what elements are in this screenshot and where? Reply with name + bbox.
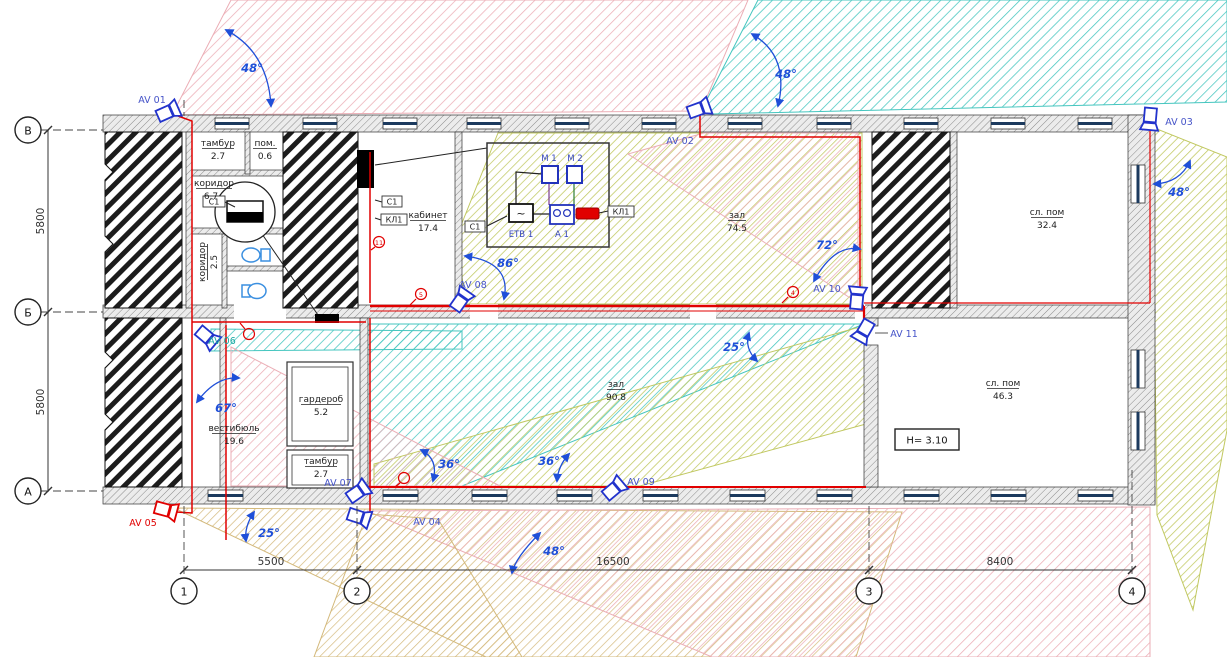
camera-label-av04: AV 04 (413, 517, 441, 528)
cable-marker: 5 (410, 289, 427, 306)
svg-text:74.5: 74.5 (727, 224, 747, 234)
angle-vestibule: 67° (215, 401, 237, 415)
height-note: H= 3.10 (895, 429, 959, 450)
dim-16500: 16500 (596, 556, 629, 568)
wall-device-black (357, 150, 374, 188)
svg-text:сл. пом: сл. пом (986, 379, 1021, 389)
zone-av03 (1152, 127, 1227, 610)
svg-text:0.6: 0.6 (258, 152, 273, 162)
sink-icon (242, 284, 266, 299)
svg-text:сл. пом: сл. пом (1030, 208, 1065, 218)
svg-text:5: 5 (419, 291, 423, 299)
camera-label-av10: AV 10 (813, 284, 841, 295)
svg-text:зал: зал (608, 380, 624, 390)
power-unit-label: ЕТВ 1 (509, 230, 534, 240)
svg-text:тамбур: тамбур (201, 139, 235, 149)
kl1-tag-2: КЛ1 (381, 214, 407, 225)
angle-av05: 25° (258, 526, 280, 540)
floor-plan-canvas: ~ КЛ1 С1 М 1 М 2 ЕТВ 1 А 1 С1 С1 КЛ1 (0, 0, 1227, 657)
kl1-tag: КЛ1 (608, 206, 634, 217)
dim-5800-bottom: 5800 (35, 389, 47, 416)
monitor-1-icon (542, 166, 558, 183)
axis-col-4: 4 (1129, 586, 1136, 599)
angle-av02: 48° (774, 67, 797, 81)
camera-label-av01: AV 01 (138, 95, 166, 106)
angle-av10: 72° (816, 238, 838, 252)
room-cabinet: кабинет17.4 (408, 211, 447, 234)
svg-text:тамбур: тамбур (304, 457, 338, 467)
recorder-label: А 1 (555, 230, 569, 240)
dim-8400: 8400 (987, 556, 1014, 568)
zone-av01 (172, 0, 748, 115)
room-pom: пом.0.6 (253, 139, 277, 162)
dark-block-lower-left (105, 318, 182, 487)
axis-col-2: 2 (354, 586, 361, 599)
coverage-zones (172, 0, 1227, 657)
angle-av01: 48° (240, 61, 263, 75)
axis-row-b: Б (24, 307, 32, 320)
monitor-1-label: М 1 (541, 154, 556, 164)
svg-text:90.8: 90.8 (606, 393, 626, 403)
svg-text:11: 11 (375, 239, 383, 247)
camera-label-av05: AV 05 (129, 518, 157, 529)
dim-5500: 5500 (258, 556, 285, 568)
svg-text:6.7: 6.7 (204, 192, 218, 202)
camera-label-av06: AV 06 (208, 336, 236, 347)
axis-row-v: В (24, 125, 32, 138)
svg-text:коридор: коридор (198, 242, 208, 282)
svg-text:КЛ1: КЛ1 (386, 216, 403, 225)
svg-text:пом.: пом. (254, 139, 275, 149)
c1-tag-label: С1 (470, 223, 481, 232)
angle-av04: 48° (542, 544, 565, 558)
kl1-tag-label: КЛ1 (613, 208, 630, 217)
camera-label-av03: AV 03 (1165, 117, 1193, 128)
cabinet-wall-tags: С1 КЛ1 (375, 196, 407, 225)
camera-label-av09: AV 09 (627, 477, 655, 488)
dark-block-upper-left (105, 132, 182, 308)
cable-marker: 11 (371, 237, 385, 251)
c1-tag-3: С1 (382, 196, 402, 207)
cable-coil-icon (576, 208, 599, 219)
svg-text:2.5: 2.5 (210, 255, 220, 269)
svg-text:зал: зал (729, 211, 745, 221)
svg-text:С1: С1 (387, 198, 398, 207)
svg-text:4: 4 (791, 289, 795, 297)
svg-text:2.7: 2.7 (211, 152, 225, 162)
camera-label-av02: AV 02 (666, 136, 694, 147)
svg-text:46.3: 46.3 (993, 392, 1013, 402)
wc-fixtures (242, 248, 270, 299)
svg-text:19.6: 19.6 (224, 437, 244, 447)
camera-label-av07: AV 07 (324, 478, 352, 489)
recorder-icon (550, 205, 574, 224)
svg-text:~: ~ (516, 207, 525, 220)
monitor-2-icon (567, 166, 582, 183)
dark-block-right (872, 132, 950, 308)
svg-text:коридор: коридор (194, 179, 234, 189)
angle-av08: 86° (497, 256, 519, 270)
room-tambour-1: тамбур2.7 (201, 139, 235, 162)
svg-text:17.4: 17.4 (418, 224, 438, 234)
monitor-2-label: М 2 (567, 154, 582, 164)
angle-av07: 36° (438, 457, 460, 471)
power-unit-icon: ~ (509, 204, 533, 222)
room-sl-pom-1: сл. пом32.4 (1030, 208, 1065, 231)
camera-label-av11: AV 11 (890, 329, 918, 340)
axis-col-3: 3 (866, 586, 873, 599)
height-note-label: H= 3.10 (906, 436, 947, 447)
device-icon (227, 201, 263, 222)
svg-text:5.2: 5.2 (314, 408, 328, 418)
camera-label-av08: AV 08 (459, 280, 487, 291)
toilet-icon (242, 248, 270, 262)
axis-col-1: 1 (181, 586, 188, 599)
angle-av03: 48° (1167, 185, 1190, 199)
svg-text:32.4: 32.4 (1037, 221, 1057, 231)
room-sl-pom-2: сл. пом46.3 (986, 379, 1021, 402)
angle-av09: 36° (538, 454, 560, 468)
svg-text:гардероб: гардероб (299, 395, 344, 405)
dim-5800-top: 5800 (35, 208, 47, 235)
floor-plan-drawing: ~ КЛ1 С1 М 1 М 2 ЕТВ 1 А 1 С1 С1 КЛ1 (0, 0, 1227, 657)
svg-text:кабинет: кабинет (408, 211, 447, 221)
svg-text:вестибюль: вестибюль (208, 424, 259, 434)
angle-av11: 25° (723, 340, 745, 354)
room-corridor-2: коридор2.5 (198, 242, 220, 282)
axis-row-a: А (24, 486, 32, 499)
c1-tag: С1 (465, 221, 485, 232)
svg-text:2.7: 2.7 (314, 470, 328, 480)
dark-block-center (283, 132, 358, 308)
